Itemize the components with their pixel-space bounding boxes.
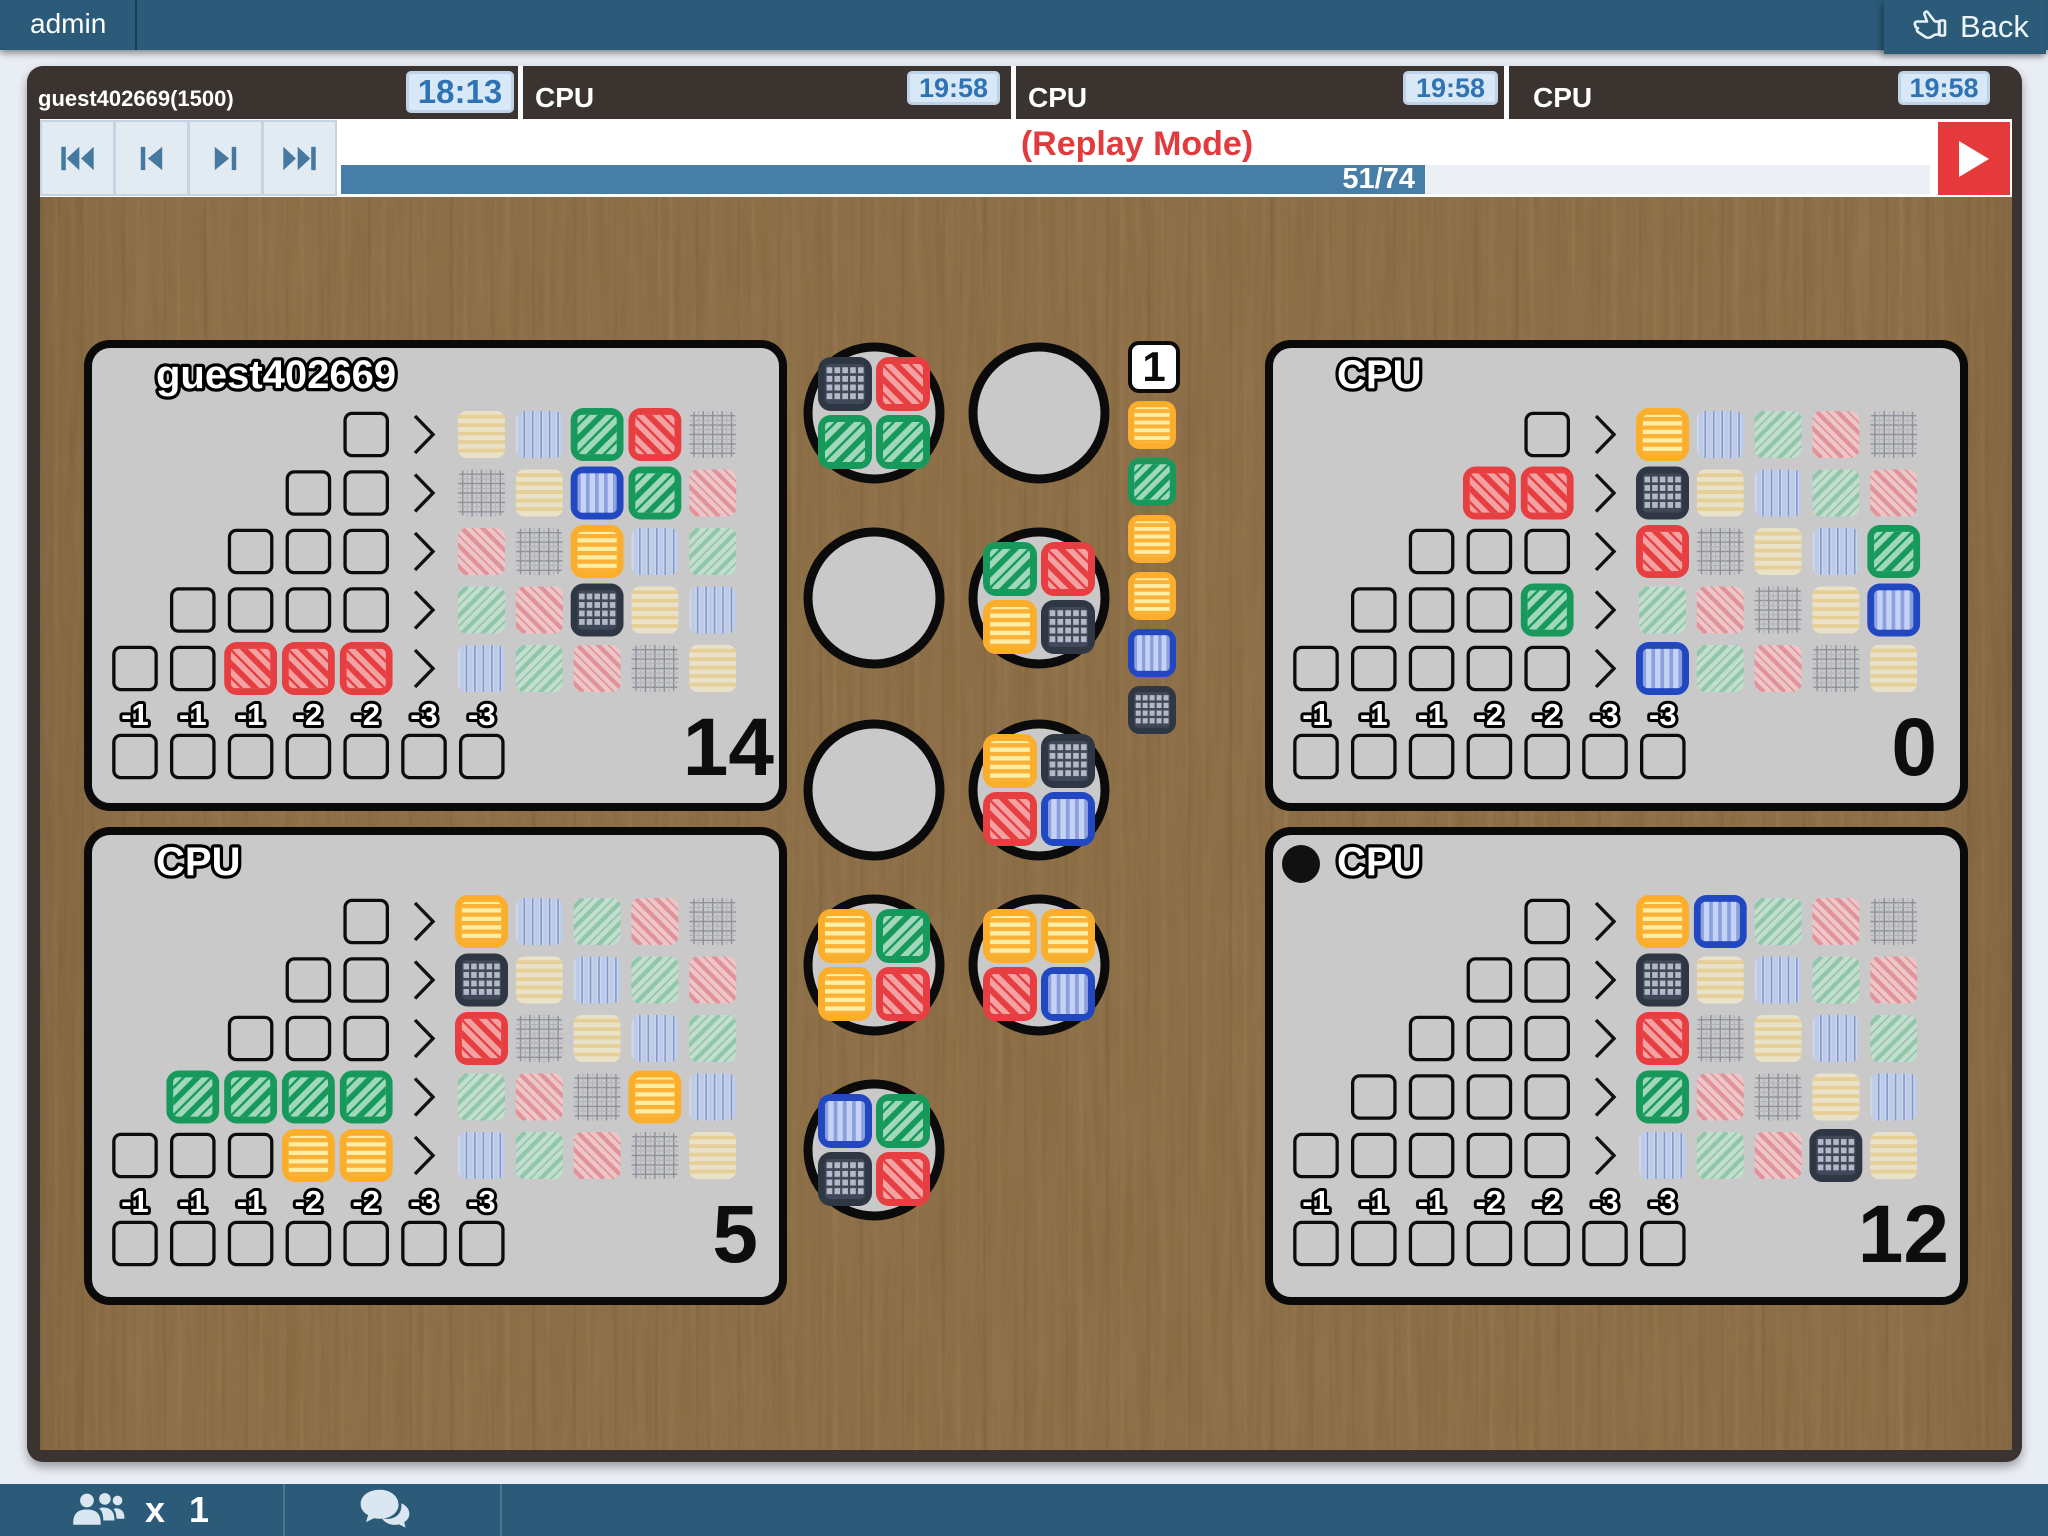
svg-text:-1: -1	[237, 697, 265, 732]
svg-text:-1: -1	[121, 697, 149, 732]
svg-text:-1: -1	[179, 1184, 207, 1219]
svg-text:-3: -3	[410, 1184, 438, 1219]
svg-text:-1: -1	[1418, 1184, 1446, 1219]
svg-text:-3: -3	[468, 697, 496, 732]
svg-text:-1: -1	[1360, 697, 1388, 732]
svg-text:-3: -3	[1591, 1184, 1619, 1219]
svg-text:-3: -3	[468, 1184, 496, 1219]
svg-text:-2: -2	[1476, 697, 1504, 732]
svg-text:14: 14	[683, 702, 775, 793]
svg-text:guest402669: guest402669	[156, 353, 396, 397]
svg-text:-2: -2	[1533, 697, 1561, 732]
svg-text:-2: -2	[1533, 1184, 1561, 1219]
svg-text:-2: -2	[295, 1184, 323, 1219]
svg-text:CPU: CPU	[1337, 840, 1421, 884]
svg-text:-2: -2	[352, 697, 380, 732]
svg-text:-2: -2	[295, 697, 323, 732]
svg-text:-1: -1	[237, 1184, 265, 1219]
svg-text:12: 12	[1858, 1189, 1949, 1280]
svg-text:1: 1	[1142, 343, 1165, 390]
svg-text:-1: -1	[1418, 697, 1446, 732]
svg-text:5: 5	[712, 1189, 758, 1280]
svg-text:-1: -1	[121, 1184, 149, 1219]
svg-text:-1: -1	[1360, 1184, 1388, 1219]
svg-text:-1: -1	[1302, 1184, 1330, 1219]
svg-text:0: 0	[1891, 702, 1937, 793]
svg-text:-2: -2	[1476, 1184, 1504, 1219]
svg-text:-1: -1	[1302, 697, 1330, 732]
svg-text:CPU: CPU	[1337, 353, 1421, 397]
svg-text:-3: -3	[1591, 697, 1619, 732]
svg-text:-2: -2	[352, 1184, 380, 1219]
svg-text:-3: -3	[1649, 697, 1677, 732]
svg-text:CPU: CPU	[156, 840, 240, 884]
svg-text:-3: -3	[410, 697, 438, 732]
svg-text:-3: -3	[1649, 1184, 1677, 1219]
svg-text:-1: -1	[179, 697, 207, 732]
